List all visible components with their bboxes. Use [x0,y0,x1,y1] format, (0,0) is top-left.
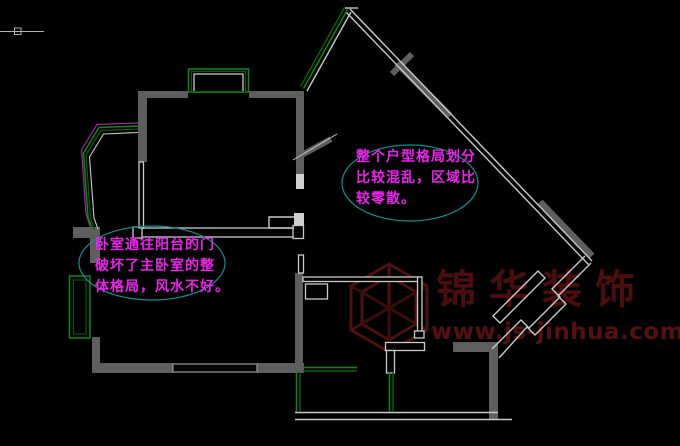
floorplan-canvas[interactable] [0,0,680,446]
annotation-layout-note: 整个户型格局划分 比较混乱，区域比 较零散。 [356,147,476,210]
annotation-line: 卧室通往阳台的门 [95,234,230,255]
annotation-line: 比较混乱，区域比 [356,168,476,189]
cad-viewport: 锦华装饰 www.js-jinhua.com [0,0,680,446]
crosshair-cursor-icon [0,28,44,35]
annotation-line: 较零散。 [356,189,476,210]
walls-thin [133,74,425,373]
apex-window-lines [301,8,348,89]
wall-caps [294,174,304,230]
windows-green [70,8,394,413]
bedroom-door-leaf [269,217,294,228]
annotation-line: 整个户型格局划分 [356,147,476,168]
balcony-window-multiline [82,123,139,230]
thin-lines [269,8,592,420]
annotation-line: 破坏了主卧室的整 [95,255,230,276]
annotation-line: 体格局，风水不好。 [95,276,230,297]
bath-window-lines [297,368,394,413]
annotation-bedroom-note: 卧室通往阳台的门 破坏了主卧室的整 体格局，风水不好。 [95,234,230,297]
entry-door-leaf [493,271,545,323]
